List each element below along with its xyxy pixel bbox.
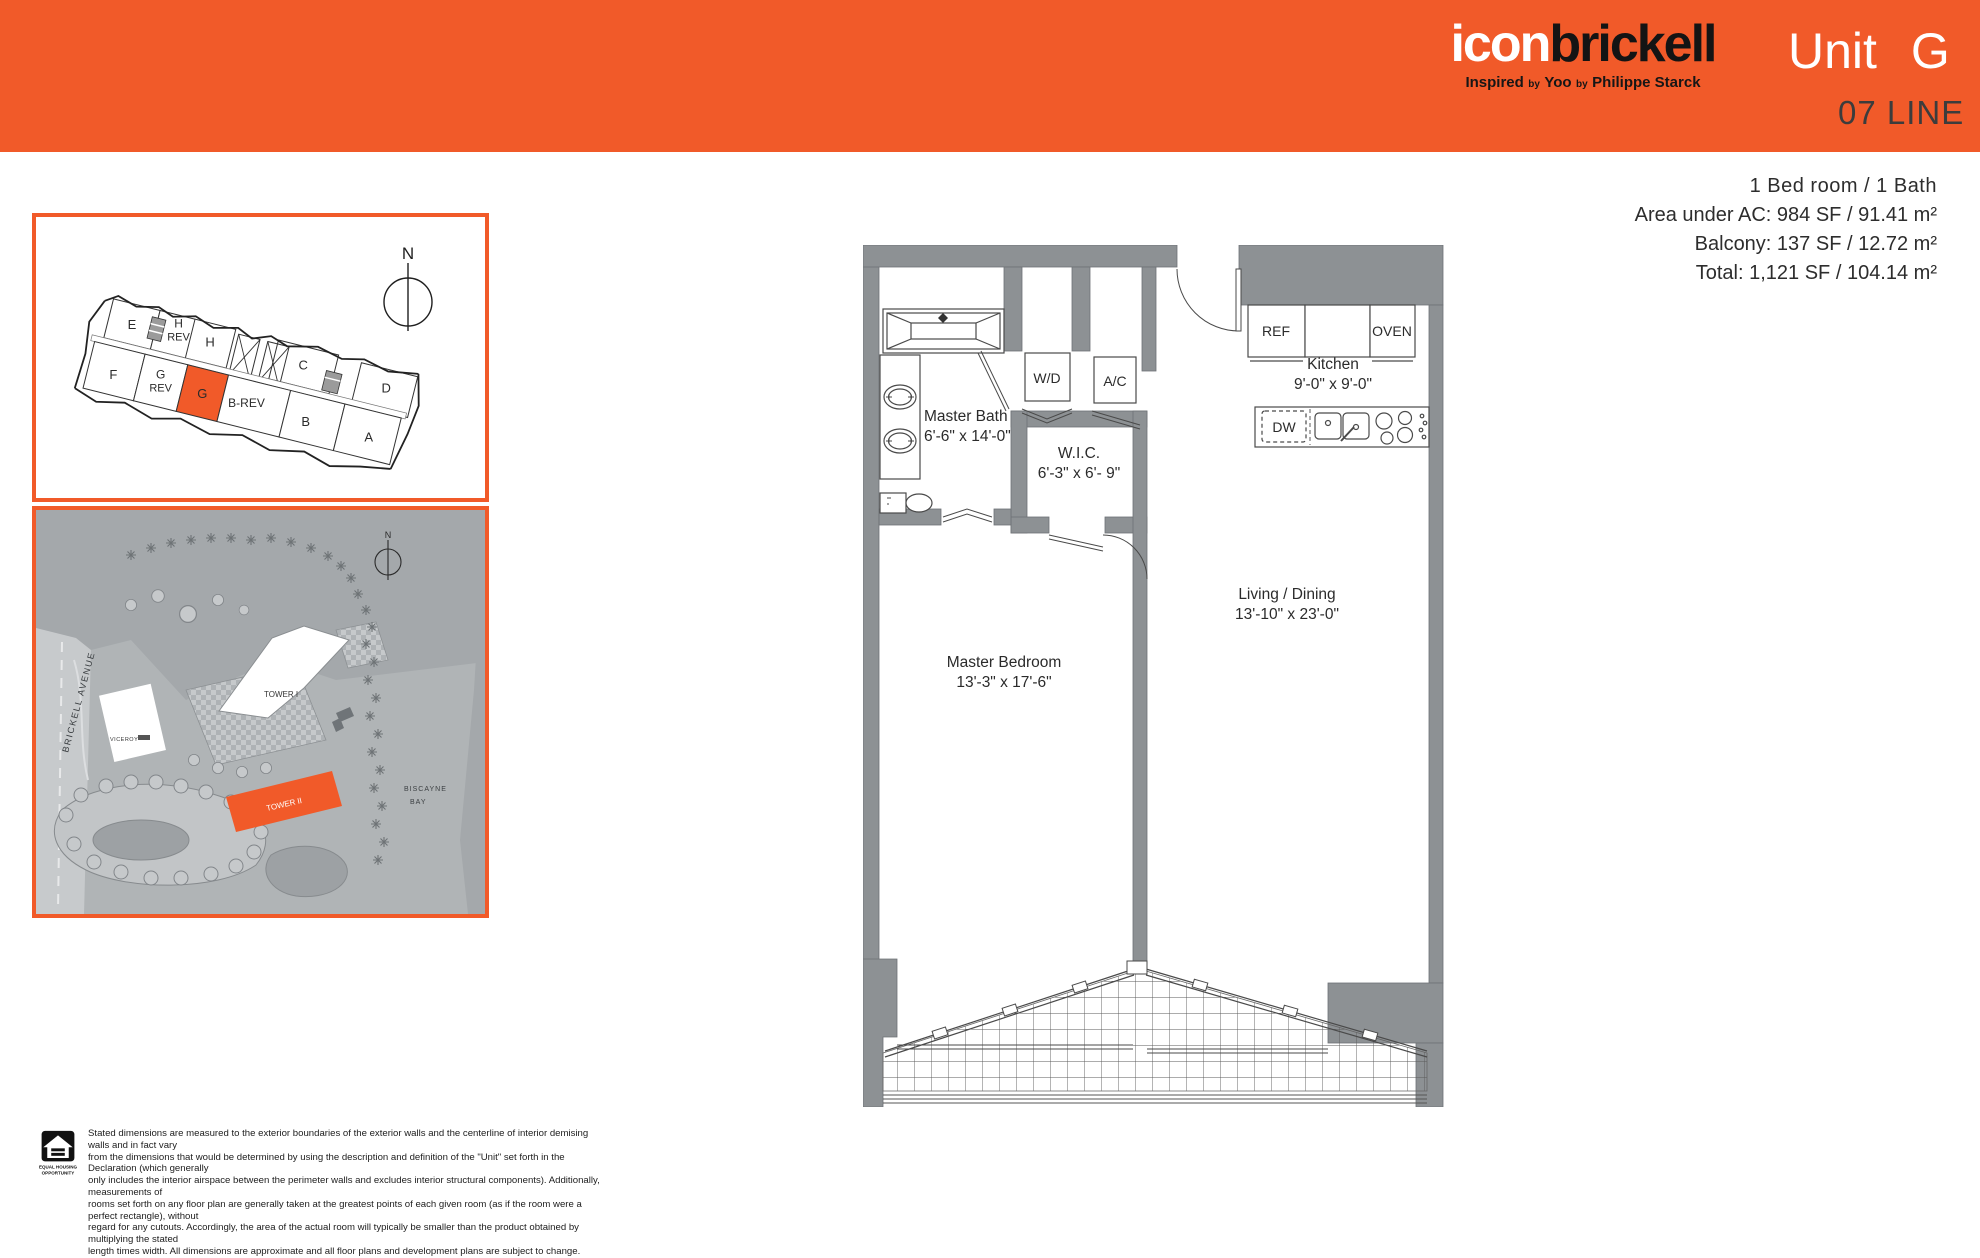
summary-balcony: Balcony: 137 SF / 12.72 m² <box>1635 230 1937 259</box>
bath-door <box>978 351 1009 411</box>
svg-text:Kitchen: Kitchen <box>1307 356 1359 373</box>
label-master-bedroom: Master Bedroom 13'-3" x 17'-6" <box>947 654 1062 691</box>
siteplan-pool <box>266 846 348 896</box>
tagline-yoo: Yoo <box>1544 74 1571 91</box>
siteplan-bay-label-1: BISCAYNE <box>404 786 447 793</box>
keyplan-building: E HREV H C D F GREV G B-REV B A <box>69 291 426 484</box>
brand-brickell-word: brickell <box>1549 15 1715 73</box>
bedroom-bath-door <box>943 509 992 522</box>
brand-logo: iconbrickell Inspired by Yoo by Philippe… <box>1443 16 1723 92</box>
summary-bed-bath: 1 Bed room / 1 Bath <box>1635 172 1937 201</box>
tagline-by-1: by <box>1528 79 1540 90</box>
keyplan-unit-c: C <box>299 358 308 373</box>
floorplan: W/D A/C REF OVEN DW Master Bath 6'-6" x … <box>863 245 1445 1107</box>
svg-text:Master Bedroom: Master Bedroom <box>947 654 1062 671</box>
siteplan-viceroy-label: VICEROY <box>110 737 138 743</box>
disclaimer-line: rooms set forth on any floor plan are ge… <box>88 1199 608 1223</box>
keyplan-unit-hrev-l1: H <box>174 316 183 330</box>
keyplan-unit-e: E <box>128 317 137 332</box>
disclaimer-line: length times width. All dimensions are a… <box>88 1246 608 1258</box>
disclaimer-line: regard for any cutouts. Accordingly, the… <box>88 1222 608 1246</box>
disclaimer-text: Stated dimensions are measured to the ex… <box>88 1128 608 1258</box>
label-living-dining: Living / Dining 13'-10" x 23'-0" <box>1235 586 1339 623</box>
keyplan-unit-hrev-l2: REV <box>167 331 190 343</box>
label-ref: REF <box>1262 323 1290 339</box>
brand-wordmark: iconbrickell <box>1443 16 1723 72</box>
unit-value: G <box>1911 23 1950 79</box>
svg-text:Living / Dining: Living / Dining <box>1238 586 1335 603</box>
keyplan-north-arrow: N <box>384 244 432 331</box>
vanity-sinks <box>880 355 920 479</box>
unit-title: UnitG <box>1788 22 1950 80</box>
bathtub <box>883 309 1004 353</box>
label-oven: OVEN <box>1372 323 1412 339</box>
siteplan-north-label: N <box>385 530 392 540</box>
brand-icon-word: icon <box>1450 15 1549 73</box>
header-banner: iconbrickell Inspired by Yoo by Philippe… <box>0 0 1980 152</box>
siteplan-box: BRICKELL AVENUE TOWER I VICEROY TOWER II… <box>32 506 489 918</box>
svg-text:W.I.C.: W.I.C. <box>1058 445 1100 462</box>
keyplan-box: N E HREV <box>32 213 489 502</box>
svg-text:13'-10" x 23'-0": 13'-10" x 23'-0" <box>1235 606 1339 623</box>
equal-housing-logo: EQUAL HOUSING OPPORTUNITY <box>38 1128 78 1180</box>
toilet <box>880 493 932 513</box>
label-wic: W.I.C. 6'-3" x 6'- 9" <box>1038 445 1120 482</box>
keyplan-unit-brev: B-REV <box>228 396 265 410</box>
keyplan-unit-grev-l1: G <box>156 368 165 382</box>
siteplan-bay-label-2: BAY <box>410 799 427 806</box>
summary-total: Total: 1,121 SF / 104.14 m² <box>1635 259 1937 288</box>
keyplan-unit-f: F <box>109 367 117 382</box>
tagline-by-2: by <box>1576 79 1588 90</box>
keyplan-unit-b: B <box>301 414 310 429</box>
siteplan-drawing: BRICKELL AVENUE TOWER I VICEROY TOWER II… <box>36 510 485 914</box>
summary-area: Area under AC: 984 SF / 91.41 m² <box>1635 201 1937 230</box>
label-wd: W/D <box>1033 370 1060 386</box>
entry-door <box>1177 269 1241 331</box>
disclaimer-line: Stated dimensions are measured to the ex… <box>88 1128 608 1152</box>
tagline-starck: Philippe Starck <box>1592 74 1700 91</box>
tagline-inspired: Inspired <box>1465 74 1523 91</box>
disclaimer-line: only includes the interior airspace betw… <box>88 1175 608 1199</box>
siteplan-tower1-label: TOWER I <box>264 690 298 699</box>
wic-door <box>1049 535 1147 579</box>
keyplan-drawing: N E HREV <box>36 217 485 498</box>
balcony-floor-band <box>883 1095 1427 1103</box>
unit-label: Unit <box>1788 23 1877 79</box>
label-ac: A/C <box>1103 373 1126 389</box>
eho-caption-1: EQUAL HOUSING <box>39 1165 78 1170</box>
disclaimer: EQUAL HOUSING OPPORTUNITY Stated dimensi… <box>38 1128 608 1258</box>
keyplan-unit-h: H <box>205 334 214 349</box>
svg-text:6'-3" x 6'- 9": 6'-3" x 6'- 9" <box>1038 465 1120 482</box>
svg-text:13'-3" x 17'-6": 13'-3" x 17'-6" <box>956 674 1051 691</box>
svg-text:9'-0" x 9'-0": 9'-0" x 9'-0" <box>1294 376 1372 393</box>
keyplan-unit-grev-l2: REV <box>149 383 172 395</box>
unit-summary: 1 Bed room / 1 Bath Area under AC: 984 S… <box>1635 172 1937 288</box>
svg-text:6'-6" x 14'-0": 6'-6" x 14'-0" <box>924 428 1011 445</box>
label-master-bath: Master Bath 6'-6" x 14'-0" <box>924 408 1011 445</box>
eho-caption-2: OPPORTUNITY <box>42 1170 75 1175</box>
label-kitchen: Kitchen 9'-0" x 9'-0" <box>1294 356 1372 393</box>
svg-text:Master Bath: Master Bath <box>924 408 1008 425</box>
keyplan-north-label: N <box>402 244 414 263</box>
keyplan-unit-d: D <box>381 380 390 395</box>
keyplan-unit-a: A <box>364 430 373 445</box>
floorplan-drawing: W/D A/C REF OVEN DW Master Bath 6'-6" x … <box>863 245 1445 1107</box>
label-dw: DW <box>1272 419 1296 435</box>
keyplan-unit-g: G <box>197 386 207 401</box>
brand-tagline: Inspired by Yoo by Philippe Starck <box>1443 74 1723 92</box>
disclaimer-line: from the dimensions that would be determ… <box>88 1152 608 1176</box>
line-number: 07 LINE <box>1838 94 1964 132</box>
